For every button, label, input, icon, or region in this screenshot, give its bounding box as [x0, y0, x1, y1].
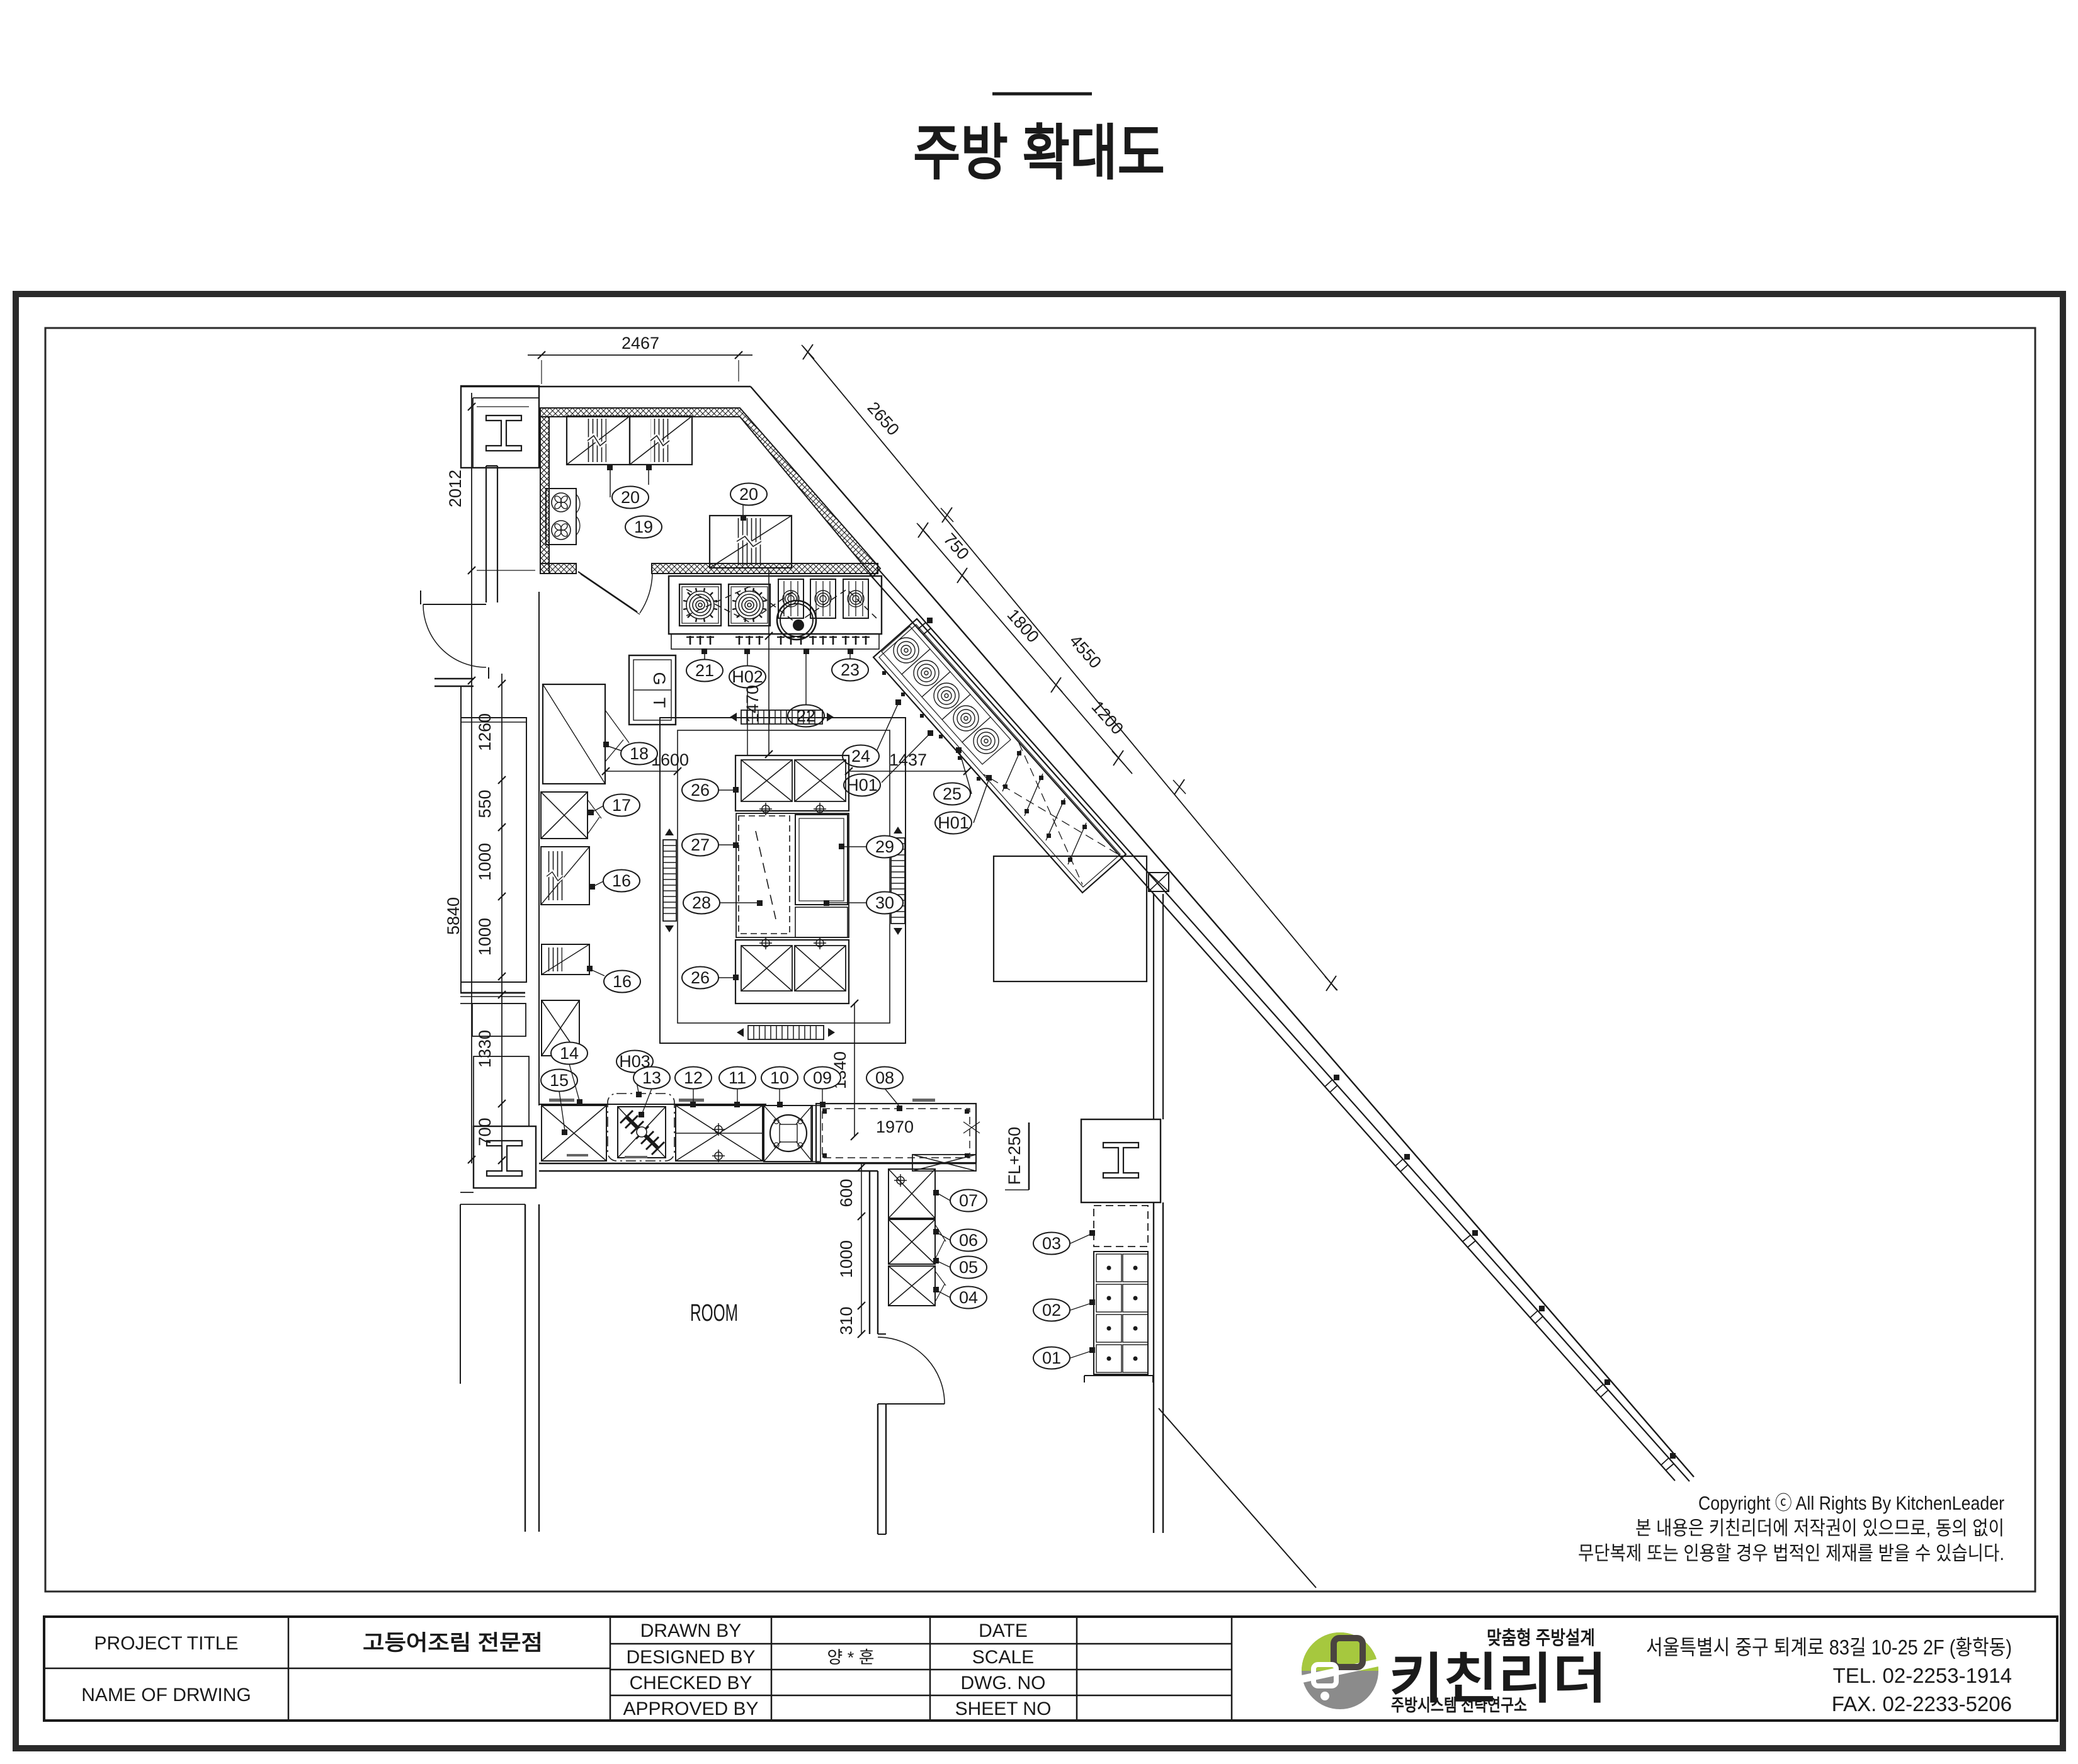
svg-text:14: 14 — [560, 1044, 579, 1063]
svg-text:고등어조림 전문점: 고등어조림 전문점 — [363, 1631, 543, 1655]
svg-text:18: 18 — [630, 744, 649, 763]
svg-text:24: 24 — [851, 747, 870, 766]
svg-text:FAX. 02-2233-5206: FAX. 02-2233-5206 — [1832, 1692, 2012, 1716]
svg-text:FL+250: FL+250 — [1005, 1127, 1024, 1185]
svg-text:20: 20 — [739, 485, 758, 504]
svg-text:H01: H01 — [938, 813, 969, 832]
svg-text:26: 26 — [691, 781, 710, 800]
svg-text:20: 20 — [621, 488, 640, 507]
svg-text:CHECKED BY: CHECKED BY — [629, 1673, 752, 1693]
svg-text:TEL. 02-2253-1914: TEL. 02-2253-1914 — [1833, 1664, 2012, 1687]
svg-text:DATE: DATE — [979, 1620, 1028, 1641]
svg-text:26: 26 — [691, 968, 710, 987]
svg-text:APPROVED BY: APPROVED BY — [623, 1699, 758, 1719]
svg-text:1260: 1260 — [475, 713, 494, 751]
svg-text:DWG. NO: DWG. NO — [961, 1673, 1046, 1693]
svg-text:15: 15 — [550, 1071, 569, 1090]
svg-text:08: 08 — [875, 1068, 894, 1087]
svg-text:서울특별시 중구 퇴계로 83길 10-25 2F (황학동: 서울특별시 중구 퇴계로 83길 10-25 2F (황학동) — [1646, 1636, 2012, 1659]
svg-text:11: 11 — [729, 1068, 746, 1087]
svg-text:16: 16 — [613, 972, 632, 991]
svg-text:양 * 훈: 양 * 훈 — [827, 1648, 874, 1667]
svg-text:05: 05 — [959, 1258, 978, 1277]
svg-text:NAME OF DRWING: NAME OF DRWING — [81, 1685, 251, 1705]
svg-text:04: 04 — [959, 1288, 978, 1307]
svg-text:310: 310 — [837, 1306, 856, 1335]
svg-text:01: 01 — [1042, 1348, 1061, 1367]
svg-text:1470: 1470 — [743, 685, 762, 723]
svg-text:600: 600 — [837, 1179, 856, 1207]
svg-text:T: T — [650, 698, 669, 708]
svg-text:13: 13 — [642, 1068, 661, 1087]
svg-text:H01: H01 — [846, 776, 878, 794]
svg-text:무단복제 또는 인용할 경우 법적인 제재를 받을 수 있습: 무단복제 또는 인용할 경우 법적인 제재를 받을 수 있습니다. — [1578, 1542, 2004, 1564]
svg-text:22: 22 — [797, 706, 815, 725]
svg-text:PROJECT TITLE: PROJECT TITLE — [94, 1633, 239, 1654]
svg-text:03: 03 — [1042, 1234, 1061, 1253]
svg-text:ROOM: ROOM — [690, 1300, 738, 1326]
svg-text:5840: 5840 — [444, 897, 463, 935]
svg-text:Copyright ⓒ All Rights By Kitc: Copyright ⓒ All Rights By KitchenLeader — [1698, 1492, 2004, 1514]
svg-text:H02: H02 — [732, 667, 763, 686]
svg-text:10: 10 — [770, 1068, 789, 1087]
svg-text:27: 27 — [691, 835, 710, 854]
svg-text:1000: 1000 — [475, 843, 494, 881]
svg-text:1000: 1000 — [837, 1240, 856, 1278]
svg-text:09: 09 — [813, 1068, 832, 1087]
svg-text:12: 12 — [684, 1068, 703, 1087]
svg-text:1970: 1970 — [876, 1117, 914, 1136]
svg-text:30: 30 — [875, 893, 894, 912]
svg-text:SHEET NO: SHEET NO — [955, 1699, 1052, 1719]
svg-text:SCALE: SCALE — [972, 1647, 1034, 1668]
svg-text:550: 550 — [475, 789, 494, 818]
svg-text:16: 16 — [612, 871, 631, 890]
svg-text:1437: 1437 — [889, 750, 927, 769]
svg-text:1000: 1000 — [475, 918, 494, 956]
svg-text:17: 17 — [612, 796, 631, 815]
svg-text:본 내용은 키친리더에 저작권이 있으므로, 동의 없이: 본 내용은 키친리더에 저작권이 있으므로, 동의 없이 — [1635, 1517, 2004, 1539]
svg-text:29: 29 — [875, 837, 894, 856]
svg-text:02: 02 — [1042, 1301, 1061, 1320]
svg-text:DESIGNED BY: DESIGNED BY — [626, 1647, 755, 1668]
svg-text:1330: 1330 — [475, 1030, 494, 1068]
svg-text:19: 19 — [634, 517, 653, 536]
svg-text:07: 07 — [959, 1191, 978, 1210]
svg-text:2467: 2467 — [622, 334, 659, 353]
svg-text:주방시스템 전략연구소: 주방시스템 전략연구소 — [1391, 1696, 1527, 1715]
svg-text:06: 06 — [959, 1231, 978, 1250]
svg-text:21: 21 — [695, 661, 714, 680]
svg-text:28: 28 — [692, 893, 711, 912]
svg-text:23: 23 — [841, 660, 860, 679]
svg-text:DRAWN BY: DRAWN BY — [640, 1620, 742, 1641]
svg-text:2012: 2012 — [446, 470, 465, 507]
svg-text:700: 700 — [475, 1117, 494, 1146]
svg-text:G: G — [650, 672, 669, 685]
svg-text:25: 25 — [943, 784, 962, 803]
svg-text:맞춤형 주방설계: 맞춤형 주방설계 — [1487, 1628, 1595, 1649]
svg-text:주방 확대도: 주방 확대도 — [913, 120, 1165, 187]
